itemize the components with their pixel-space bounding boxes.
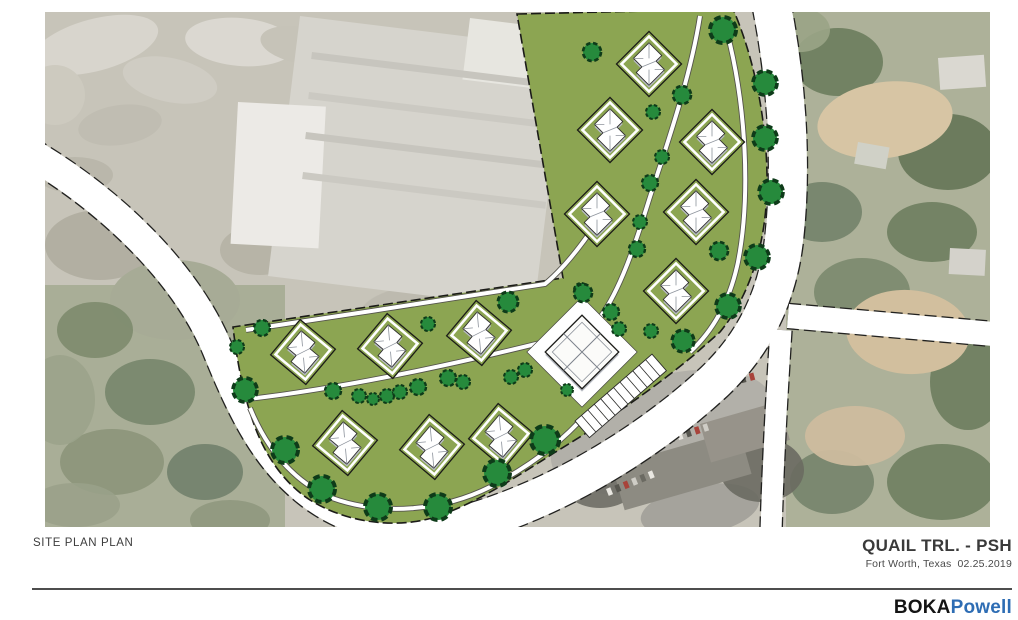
tree	[633, 215, 647, 229]
sheet: SITE PLAN PLAN QUAIL TRL. - PSH Fort Wor…	[0, 0, 1018, 620]
tree	[531, 426, 559, 454]
tree	[498, 292, 518, 312]
tree	[710, 242, 728, 260]
tree	[642, 175, 658, 191]
drawing-label: SITE PLAN PLAN	[33, 537, 133, 549]
project-location-date: Fort Worth, Texas02.25.2019	[862, 558, 1012, 570]
tree	[759, 180, 783, 204]
tree	[367, 393, 379, 405]
tree	[629, 241, 645, 257]
divider-rule	[32, 588, 1012, 590]
title-block: QUAIL TRL. - PSH Fort Worth, Texas02.25.…	[862, 536, 1012, 570]
tree	[484, 460, 510, 486]
tree	[710, 17, 736, 43]
tree	[233, 378, 257, 402]
tree	[612, 322, 626, 336]
tree	[753, 71, 777, 95]
firm-logo: BOKAPowell	[894, 597, 1012, 619]
tree	[230, 340, 244, 354]
tree	[716, 294, 740, 318]
tree	[254, 320, 270, 336]
tree	[603, 304, 619, 320]
tree	[365, 494, 391, 520]
tree	[325, 383, 341, 399]
tree	[583, 43, 601, 61]
tree	[644, 324, 658, 338]
tree	[380, 389, 394, 403]
tree	[745, 245, 769, 269]
tree	[518, 363, 532, 377]
tree	[456, 375, 470, 389]
tree	[646, 105, 660, 119]
tree	[393, 385, 407, 399]
tree	[309, 476, 335, 502]
tree	[425, 494, 451, 520]
south-branch-road	[771, 330, 781, 527]
tree	[673, 86, 691, 104]
tree	[410, 379, 426, 395]
site-plan-map	[45, 12, 990, 527]
tree	[672, 330, 694, 352]
tree	[272, 437, 298, 463]
tree	[504, 370, 518, 384]
tree	[753, 126, 777, 150]
firm-logo-secondary: Powell	[951, 597, 1012, 618]
tree	[655, 150, 669, 164]
firm-logo-primary: BOKA	[894, 597, 951, 618]
tree	[421, 317, 435, 331]
tree	[352, 389, 366, 403]
project-title: QUAIL TRL. - PSH	[862, 536, 1012, 556]
project-location: Fort Worth, Texas	[866, 558, 952, 570]
tree	[440, 370, 456, 386]
project-date: 02.25.2019	[957, 558, 1012, 570]
tree	[561, 384, 573, 396]
tree	[574, 284, 592, 302]
